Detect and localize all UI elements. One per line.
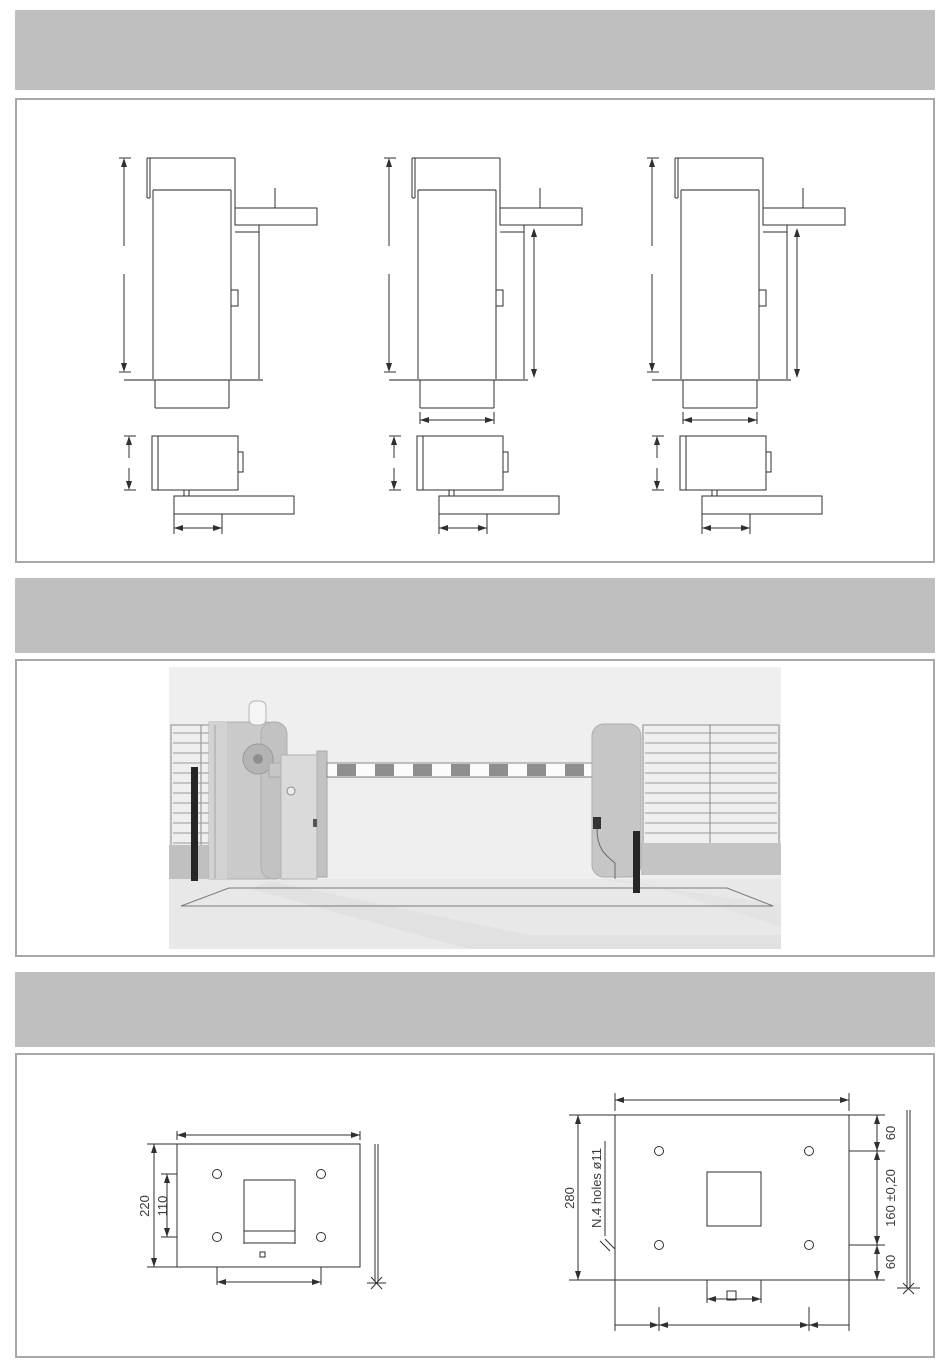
pillar-left-face bbox=[209, 722, 227, 879]
edge-top-label: 60 bbox=[883, 1126, 898, 1140]
edge-bottom-label: 60 bbox=[883, 1255, 898, 1269]
dimension-drawings bbox=[17, 100, 933, 561]
flashing-lamp bbox=[249, 701, 266, 725]
fence-base-right bbox=[641, 843, 781, 875]
barrier-installation-photo bbox=[169, 667, 781, 949]
barrier-cabinet bbox=[281, 755, 317, 879]
center-tolerance-label: 160 ±0,20 bbox=[883, 1169, 898, 1227]
left-plate-height-label: 220 bbox=[137, 1195, 152, 1217]
header-band-top bbox=[15, 10, 935, 90]
plate-drawings: 220 110 bbox=[17, 1055, 933, 1356]
left-plate-inner-label: 110 bbox=[155, 1196, 170, 1217]
top-view-right bbox=[652, 436, 822, 534]
photocell-post-right bbox=[633, 831, 640, 893]
section-band-3 bbox=[15, 972, 935, 1047]
photocell-post-left bbox=[191, 767, 198, 881]
plate-drawing-left: 220 110 bbox=[137, 1131, 386, 1289]
center-cutout-right bbox=[707, 1172, 761, 1226]
plate-drawing-right: 280 N.4 holes ø11 60 160 ±0,20 60 bbox=[562, 1093, 920, 1331]
technical-drawings-panel bbox=[15, 98, 935, 563]
installation-photo-panel bbox=[15, 659, 935, 957]
cable-slot-left bbox=[260, 1252, 265, 1257]
plate-side-view-left bbox=[367, 1144, 386, 1289]
right-plate-height-label: 280 bbox=[562, 1187, 577, 1209]
base-plate-panel: 220 110 bbox=[15, 1053, 935, 1358]
top-view-left bbox=[124, 436, 294, 534]
plate-side-view-right bbox=[897, 1110, 920, 1294]
holes-note-label: N.4 holes ø11 bbox=[589, 1148, 604, 1228]
anchor-holes-right bbox=[655, 1147, 814, 1250]
cabinet-side bbox=[317, 751, 327, 877]
front-view-center bbox=[384, 158, 582, 424]
front-view-right bbox=[647, 158, 845, 424]
section-band-2 bbox=[15, 578, 935, 653]
hub-axle bbox=[253, 754, 263, 764]
front-view-left bbox=[119, 158, 317, 408]
top-view-center bbox=[389, 436, 559, 534]
cabinet-latch bbox=[313, 819, 317, 827]
boom-arm bbox=[327, 763, 592, 777]
cabinet-lock bbox=[287, 787, 295, 795]
receiver-box bbox=[593, 817, 601, 829]
center-cutout-left bbox=[244, 1180, 295, 1231]
